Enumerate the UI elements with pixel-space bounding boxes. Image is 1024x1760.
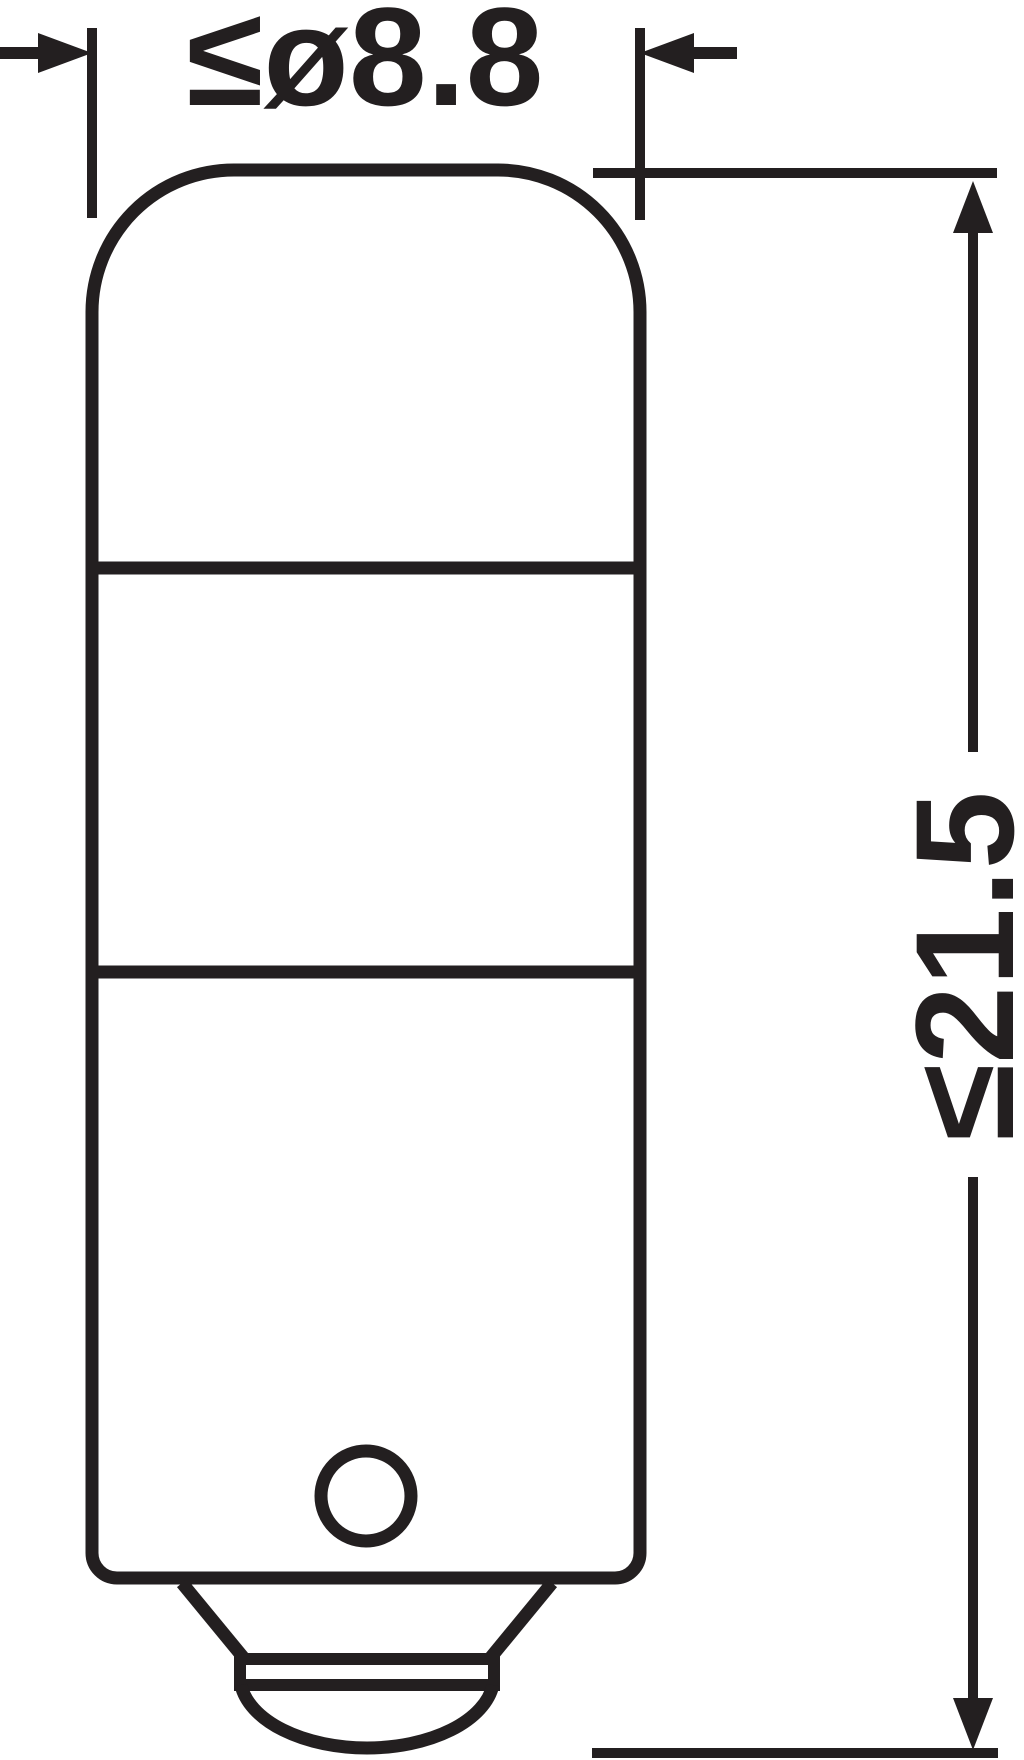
diameter-dim-right-arrowhead-icon — [640, 33, 694, 73]
bulb-body-outline — [92, 170, 640, 1578]
diameter-label: ≤ø8.8 — [187, 0, 544, 135]
length-dim-top-arrowhead-icon — [953, 181, 993, 233]
base-collar — [240, 1659, 494, 1685]
length-dim-bottom-arrowhead-icon — [953, 1698, 993, 1750]
base-right-bevel — [487, 1583, 552, 1662]
diameter-dim-left-arrowhead-icon — [38, 33, 92, 73]
base-dome-arc — [241, 1685, 493, 1748]
drawing-svg: ≤ø8.8 ≤21.5 — [0, 0, 1024, 1760]
bulb-technical-drawing: ≤ø8.8 ≤21.5 — [0, 0, 1024, 1760]
length-label: ≤21.5 — [886, 791, 1024, 1140]
base-left-bevel — [182, 1583, 247, 1662]
